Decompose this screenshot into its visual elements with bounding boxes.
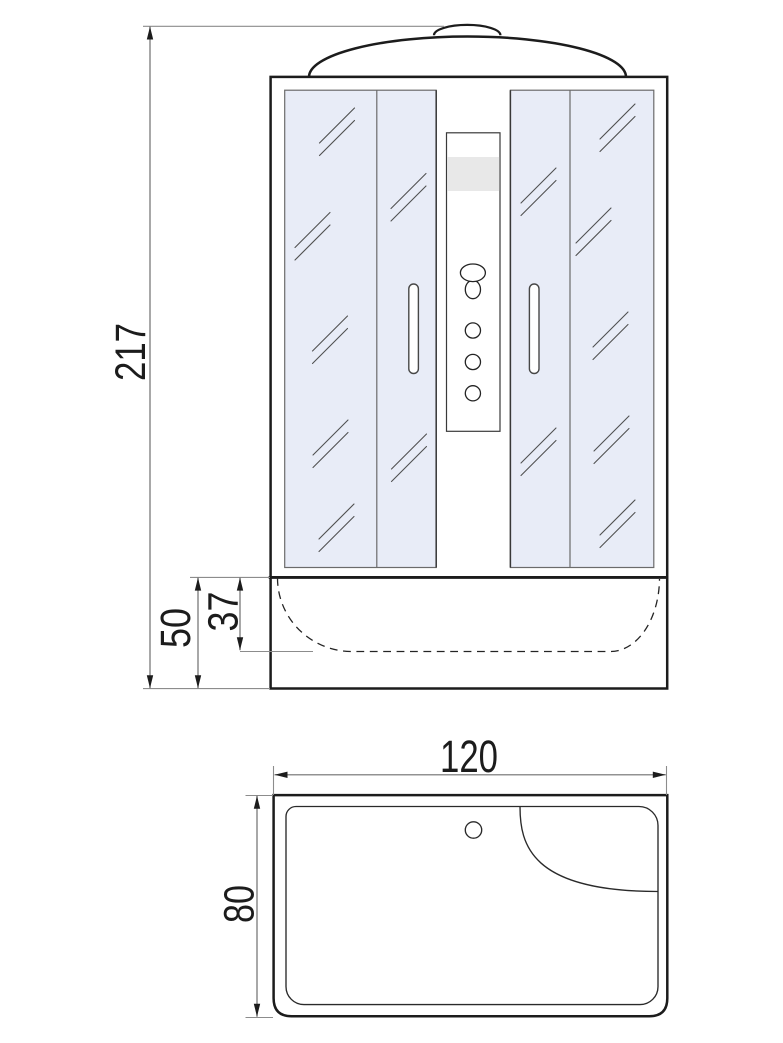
svg-text:120: 120 (440, 731, 498, 782)
svg-text:37: 37 (200, 592, 248, 632)
svg-text:80: 80 (216, 885, 264, 923)
svg-text:217: 217 (107, 323, 155, 381)
svg-text:50: 50 (152, 608, 200, 648)
